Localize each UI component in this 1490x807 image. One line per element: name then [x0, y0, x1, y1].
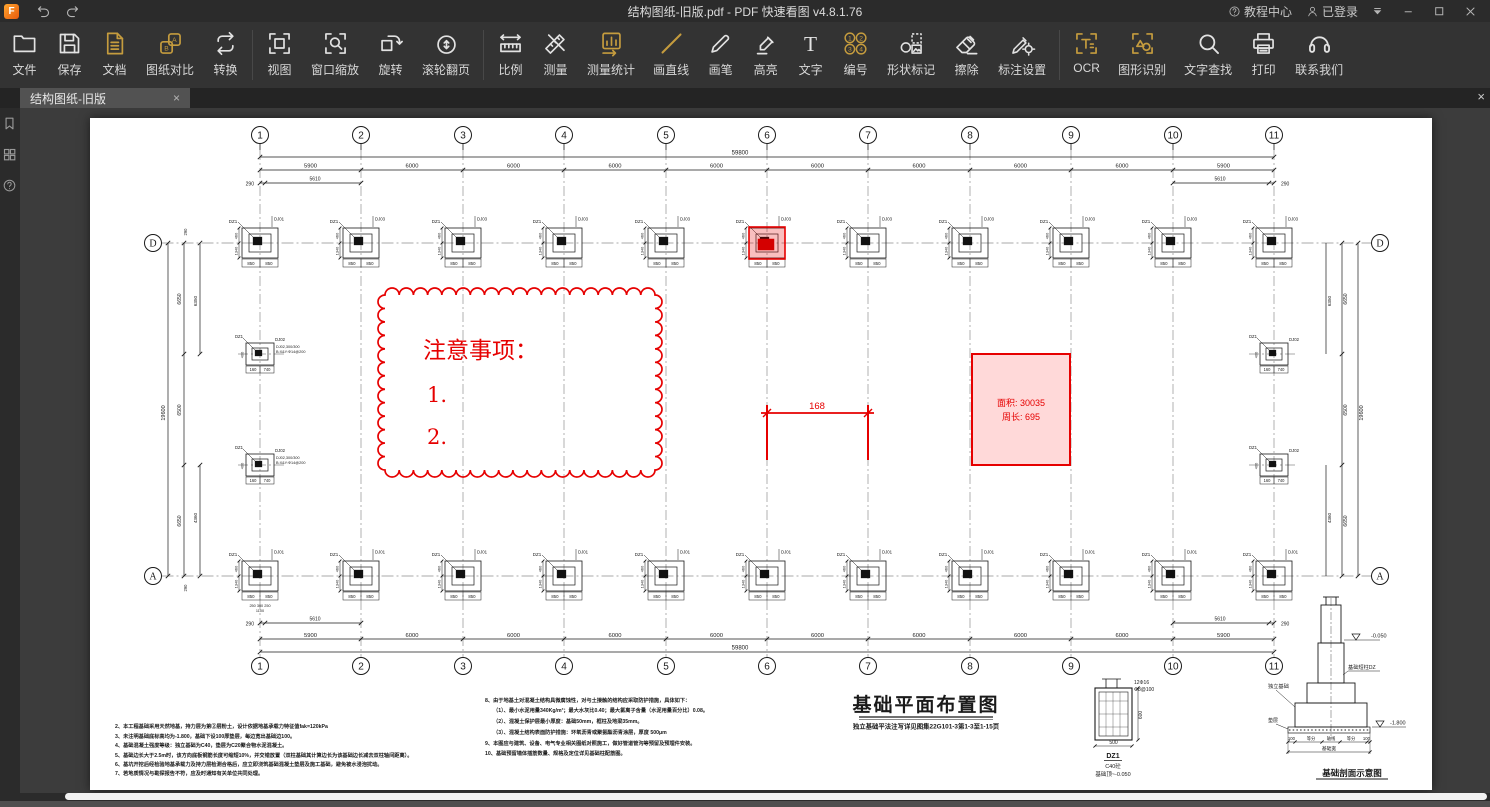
- svg-text:460: 460: [437, 565, 442, 572]
- svg-text:740: 740: [264, 367, 272, 372]
- svg-text:DJ01: DJ01: [781, 550, 792, 555]
- svg-text:DZ1: DZ1: [1040, 219, 1049, 224]
- svg-text:DZ1: DZ1: [330, 552, 339, 557]
- svg-text:850: 850: [975, 594, 983, 599]
- svg-text:850: 850: [1058, 594, 1066, 599]
- footings: DZ1DJ014601340850850DZ1DJ034601340850850…: [229, 216, 1300, 613]
- svg-text:460: 460: [944, 232, 949, 239]
- svg-text:460: 460: [234, 232, 239, 239]
- svg-text:A: A: [149, 572, 157, 583]
- toolbar-separator: [1059, 30, 1060, 80]
- svg-text:3、未注明基础底标高均为-1.800，基础下设100厚垫层，: 3、未注明基础底标高均为-1.800，基础下设100厚垫层，每边宽出基础边100…: [115, 732, 295, 740]
- svg-text:DJ03: DJ03: [578, 217, 589, 222]
- svg-text:DZ1: DZ1: [1106, 753, 1119, 760]
- svg-text:5900: 5900: [304, 633, 317, 639]
- svg-text:100: 100: [1363, 736, 1371, 741]
- toolbar-pen-button[interactable]: 画笔: [698, 29, 743, 79]
- horizontal-scrollbar-thumb[interactable]: [65, 793, 1487, 800]
- svg-text:850: 850: [1058, 261, 1066, 266]
- svg-text:1340: 1340: [1147, 579, 1152, 588]
- svg-text:850: 850: [1261, 261, 1269, 266]
- svg-text:850: 850: [754, 594, 762, 599]
- svg-text:850: 850: [569, 261, 577, 266]
- svg-text:160: 160: [1264, 478, 1272, 483]
- toolbar-label: 图形识别: [1118, 61, 1166, 78]
- toolbar-lineicon-button[interactable]: 画直线: [644, 29, 698, 79]
- svg-text:DZ1: DZ1: [330, 219, 339, 224]
- toolbar-label: 编号: [844, 61, 868, 78]
- toolbar-label: 文字: [799, 61, 823, 78]
- svg-text:290: 290: [183, 228, 188, 236]
- svg-text:6000: 6000: [1014, 633, 1027, 639]
- svg-text:160: 160: [1264, 367, 1272, 372]
- svg-text:160: 160: [250, 367, 258, 372]
- svg-text:1340: 1340: [538, 246, 543, 255]
- toolbar-label: 标注设置: [998, 61, 1046, 78]
- svg-text:DZ1: DZ1: [736, 552, 745, 557]
- svg-text:DJ02: DJ02: [275, 337, 286, 342]
- svg-text:460: 460: [234, 565, 239, 572]
- svg-text:850: 850: [855, 594, 863, 599]
- toolbar-numbers-button[interactable]: 编号: [833, 29, 878, 79]
- svg-text:400: 400: [1254, 462, 1259, 469]
- grid: 11223344556677889910101111DDAA: [145, 127, 1389, 675]
- svg-text:DJ02: DJ02: [1289, 337, 1300, 342]
- svg-text:6000: 6000: [406, 633, 419, 639]
- svg-text:（3）、混凝土结构表面防护措施：环氧沥青或聚氨酯沥青涂层，厚: （3）、混凝土结构表面防护措施：环氧沥青或聚氨酯沥青涂层，厚度 500μm: [493, 728, 667, 736]
- svg-text:460: 460: [335, 232, 340, 239]
- svg-text:独立基础: 独立基础: [1268, 682, 1289, 690]
- svg-text:850: 850: [468, 594, 476, 599]
- svg-text:DZ1: DZ1: [736, 219, 745, 224]
- svg-text:DJ03: DJ03: [680, 217, 691, 222]
- svg-text:DZ1: DZ1: [229, 219, 238, 224]
- svg-text:7: 7: [865, 131, 871, 142]
- contact-icon: [1306, 30, 1333, 57]
- close-button[interactable]: [1464, 5, 1477, 18]
- svg-text:DJ01: DJ01: [477, 550, 488, 555]
- user-icon[interactable]: [1306, 5, 1319, 18]
- toolbar-label: 打印: [1252, 61, 1276, 78]
- titlebar: F 结构图纸-旧版.pdf - PDF 快速看图 v4.8.1.76 教程中心 …: [0, 0, 1490, 22]
- svg-text:4: 4: [561, 662, 567, 673]
- annotation-cloud-note[interactable]: 注意事项：1.2.: [378, 288, 662, 477]
- svg-text:5900: 5900: [1217, 164, 1230, 170]
- redo-icon[interactable]: [65, 4, 80, 19]
- ocr-icon: [1073, 30, 1100, 57]
- svg-text:DJ01: DJ01: [578, 550, 589, 555]
- svg-text:850: 850: [873, 261, 881, 266]
- svg-text:4: 4: [561, 131, 567, 142]
- svg-text:面积: 30035: 面积: 30035: [997, 397, 1045, 408]
- svg-text:独立基础平法注写详见图集22G101-3第1-3至1-15页: 独立基础平法注写详见图集22G101-3第1-3至1-15页: [852, 722, 1000, 731]
- svg-text:5610: 5610: [1214, 177, 1225, 183]
- svg-text:6000: 6000: [609, 164, 622, 170]
- svg-text:850: 850: [653, 261, 661, 266]
- svg-text:6、基坑开挖后经检验地基承载力及持力层检测合格后，应立即浇筑: 6、基坑开挖后经检验地基承载力及持力层检测合格后，应立即浇筑基础混凝土垫层及施工…: [115, 760, 382, 768]
- toolbar-folder-button[interactable]: 文件: [2, 29, 47, 79]
- svg-text:100: 100: [1288, 736, 1296, 741]
- tab-close-icon[interactable]: ×: [173, 91, 180, 105]
- toolbar-winzoom-button[interactable]: 窗口缩放: [302, 29, 368, 79]
- svg-text:DZ1: DZ1: [229, 552, 238, 557]
- svg-text:5: 5: [663, 662, 669, 673]
- svg-text:850: 850: [1279, 261, 1287, 266]
- svg-text:DJ03: DJ03: [882, 217, 893, 222]
- svg-text:9: 9: [1068, 131, 1074, 142]
- app-logo-icon: F: [4, 4, 19, 19]
- toolbar-save-button[interactable]: 保存: [47, 29, 92, 79]
- svg-text:850: 850: [468, 261, 476, 266]
- svg-text:850: 850: [569, 594, 577, 599]
- svg-text:10: 10: [1167, 131, 1179, 142]
- app-window: F 结构图纸-旧版.pdf - PDF 快速看图 v4.8.1.76 教程中心 …: [0, 0, 1490, 807]
- svg-text:DZ1: DZ1: [432, 219, 441, 224]
- rotate-icon: [377, 30, 404, 57]
- annotation-area-box[interactable]: 面积: 30035周长: 695: [972, 354, 1070, 465]
- save-icon: [56, 30, 83, 57]
- svg-text:850: 850: [1076, 261, 1084, 266]
- tab-bar: 结构图纸-旧版 × ×: [0, 88, 1490, 108]
- document-canvas: 11223344556677889910101111DDAA5980059006…: [20, 108, 1490, 793]
- dz1-detail: 12Φ16Φ8@100600500DZ1C40砼基础顶~-0.050: [1093, 679, 1154, 778]
- winzoom-icon: [322, 30, 349, 57]
- toolbar-stats-button[interactable]: 测量统计: [578, 29, 644, 79]
- toolbar-convert-button[interactable]: 转换: [203, 29, 248, 79]
- svg-text:（2）、混凝土保护层最小厚度：基础50mm，框柱及地梁35m: （2）、混凝土保护层最小厚度：基础50mm，框柱及地梁35mm。: [493, 717, 643, 725]
- svg-text:DJ02,300/300: DJ02,300/300: [276, 345, 300, 349]
- svg-text:1340: 1340: [1248, 579, 1253, 588]
- svg-text:DZ1: DZ1: [939, 552, 948, 557]
- help-circle-icon[interactable]: [1228, 5, 1241, 18]
- svg-text:5: 5: [663, 131, 669, 142]
- svg-text:1340: 1340: [234, 579, 239, 588]
- svg-text:DJ02: DJ02: [1289, 448, 1300, 453]
- folder-icon: [11, 30, 38, 57]
- svg-text:850: 850: [772, 261, 780, 266]
- svg-text:DJ03: DJ03: [984, 217, 995, 222]
- toolbar-label: 窗口缩放: [311, 61, 359, 78]
- collapse-ribbon-icon[interactable]: [1371, 5, 1384, 18]
- svg-text:DJ02,300/300: DJ02,300/300: [276, 456, 300, 460]
- svg-text:400: 400: [240, 351, 245, 358]
- svg-text:D: D: [1376, 239, 1383, 250]
- toolbar-textt-button[interactable]: 文字: [788, 29, 833, 79]
- toolbar-scale-button[interactable]: 比例: [488, 29, 533, 79]
- toolbar-compare-button[interactable]: 图纸对比: [137, 29, 203, 79]
- svg-text:740: 740: [1278, 367, 1286, 372]
- svg-text:DZ1: DZ1: [635, 219, 644, 224]
- svg-text:19600: 19600: [1359, 405, 1365, 420]
- svg-text:850: 850: [348, 594, 356, 599]
- svg-text:DZ1: DZ1: [1249, 445, 1258, 450]
- svg-text:-1.800: -1.800: [1390, 721, 1406, 727]
- svg-text:3: 3: [460, 131, 466, 142]
- highlight-icon: [752, 30, 779, 57]
- svg-text:7: 7: [865, 662, 871, 673]
- svg-text:基础顶~-0.050: 基础顶~-0.050: [1095, 770, 1130, 778]
- horizontal-scrollbar: [0, 793, 1490, 801]
- svg-text:4360: 4360: [193, 512, 198, 523]
- toolbar-search-button[interactable]: 文字查找: [1175, 29, 1241, 79]
- svg-text:850: 850: [265, 261, 273, 266]
- svg-text:740: 740: [1278, 478, 1286, 483]
- toolbar-label: 滚轮翻页: [422, 61, 470, 78]
- svg-text:460: 460: [842, 232, 847, 239]
- svg-text:1.: 1.: [427, 383, 447, 407]
- svg-text:460: 460: [944, 565, 949, 572]
- svg-text:DJ03: DJ03: [1288, 217, 1299, 222]
- svg-text:6000: 6000: [609, 633, 622, 639]
- toolbar-label: 形状标记: [887, 61, 935, 78]
- svg-text:1340: 1340: [1248, 246, 1253, 255]
- svg-text:460: 460: [1045, 565, 1050, 572]
- svg-text:Φ8@100: Φ8@100: [1134, 687, 1154, 693]
- title-block: 基础平面布置图独立基础平法注写详见图集22G101-3第1-3至1-15页: [851, 693, 999, 731]
- toolbar-label: 比例: [499, 61, 523, 78]
- svg-text:850: 850: [772, 594, 780, 599]
- drawing-canvas: 11223344556677889910101111DDAA5980059006…: [90, 118, 1432, 790]
- toolbar-contact-button[interactable]: 联系我们: [1286, 29, 1352, 79]
- bookmark-icon[interactable]: [2, 116, 17, 131]
- svg-text:460: 460: [640, 232, 645, 239]
- search-icon: [1195, 30, 1222, 57]
- svg-text:160: 160: [250, 478, 258, 483]
- svg-text:6350: 6350: [1327, 295, 1332, 306]
- svg-text:6500: 6500: [1343, 404, 1349, 415]
- svg-text:DJ01: DJ01: [375, 550, 386, 555]
- svg-text:6500: 6500: [177, 404, 183, 415]
- svg-text:1340: 1340: [234, 246, 239, 255]
- svg-text:850: 850: [855, 261, 863, 266]
- toolbar-label: 图纸对比: [146, 61, 194, 78]
- svg-text:5900: 5900: [1217, 633, 1230, 639]
- svg-text:1340: 1340: [842, 246, 847, 255]
- svg-text:1340: 1340: [335, 579, 340, 588]
- toolbar-label: 画笔: [709, 61, 733, 78]
- svg-text:6000: 6000: [913, 633, 926, 639]
- minimize-button[interactable]: [1402, 5, 1415, 18]
- svg-text:DZ1: DZ1: [533, 219, 542, 224]
- general-notes: 2、本工程基础采用天然地基，持力层为第②层粉土，设计依据地基承载力特征值fak=…: [115, 696, 708, 777]
- shaperec-icon: [1129, 30, 1156, 57]
- pdf-page: 11223344556677889910101111DDAA5980059006…: [90, 118, 1432, 790]
- toolbar-label: 高亮: [754, 61, 778, 78]
- shapes-icon: [898, 30, 925, 57]
- svg-text:DJ03: DJ03: [1085, 217, 1096, 222]
- svg-text:850: 850: [957, 261, 965, 266]
- svg-text:850: 850: [247, 261, 255, 266]
- svg-text:4、基础混凝土强度等级：独立基础为C40，垫层为C20聚合物: 4、基础混凝土强度等级：独立基础为C40，垫层为C20聚合物水泥混凝土。: [115, 741, 287, 749]
- svg-text:1340: 1340: [437, 246, 442, 255]
- svg-text:850: 850: [873, 594, 881, 599]
- svg-text:DJ03: DJ03: [375, 217, 386, 222]
- help-icon[interactable]: [2, 178, 17, 193]
- svg-text:DZ1: DZ1: [837, 219, 846, 224]
- svg-text:DJ01: DJ01: [274, 550, 285, 555]
- svg-text:3: 3: [460, 662, 466, 673]
- svg-text:1340: 1340: [437, 579, 442, 588]
- svg-text:周长: 695: 周长: 695: [1002, 411, 1040, 422]
- svg-text:DJ03: DJ03: [1187, 217, 1198, 222]
- toolbar-print-button[interactable]: 打印: [1241, 29, 1286, 79]
- svg-text:10、基础预留墙体插筋数量、规格及定位详见基础柱配筋图。: 10、基础预留墙体插筋数量、规格及定位详见基础柱配筋图。: [485, 749, 626, 757]
- toolbar-highlight-button[interactable]: 高亮: [743, 29, 788, 79]
- svg-text:DZ1: DZ1: [1142, 552, 1151, 557]
- toolbar-label: 联系我们: [1295, 61, 1343, 78]
- toolbar-separator: [483, 30, 484, 80]
- svg-text:DJ03: DJ03: [781, 217, 792, 222]
- doc-icon: [101, 30, 128, 57]
- svg-text:轴线: 轴线: [1327, 735, 1336, 742]
- svg-text:C40砼: C40砼: [1105, 762, 1121, 770]
- svg-text:850: 850: [957, 594, 965, 599]
- svg-text:168: 168: [809, 401, 825, 412]
- toolbar-doc-button[interactable]: 文档: [92, 29, 137, 79]
- toolbar-annoset-button[interactable]: 标注设置: [989, 29, 1055, 79]
- svg-text:6000: 6000: [811, 164, 824, 170]
- toolbar-shaperec-button[interactable]: 图形识别: [1109, 29, 1175, 79]
- svg-text:5、基础边长大于2.5m时，该方向底板钢筋长度可缩短10%，: 5、基础边长大于2.5m时，该方向底板钢筋长度可缩短10%，并交错放置（双柱基础…: [115, 751, 412, 759]
- svg-text:基础剖面示意图: 基础剖面示意图: [1321, 768, 1382, 778]
- svg-text:基础短柱DZ: 基础短柱DZ: [1348, 663, 1376, 671]
- svg-text:59800: 59800: [732, 646, 749, 652]
- svg-text:DZ1: DZ1: [432, 552, 441, 557]
- svg-text:D: D: [149, 239, 156, 250]
- toolbar-label: 文档: [102, 61, 126, 78]
- toolbar-label: 旋转: [379, 61, 403, 78]
- svg-text:6000: 6000: [811, 633, 824, 639]
- svg-text:460: 460: [437, 232, 442, 239]
- toolbar-measure-button[interactable]: 测量: [533, 29, 578, 79]
- toolbar-separator: [252, 30, 253, 80]
- svg-text:850: 850: [366, 261, 374, 266]
- svg-text:1340: 1340: [944, 246, 949, 255]
- svg-text:850: 850: [975, 261, 983, 266]
- svg-text:6000: 6000: [710, 633, 723, 639]
- svg-text:850: 850: [551, 594, 559, 599]
- svg-text:290: 290: [1281, 182, 1290, 188]
- svg-text:850: 850: [653, 594, 661, 599]
- svg-text:4360: 4360: [1327, 512, 1332, 523]
- svg-text:1340: 1340: [944, 579, 949, 588]
- svg-text:850: 850: [348, 261, 356, 266]
- svg-text:850: 850: [366, 594, 374, 599]
- convert-icon: [212, 30, 239, 57]
- svg-text:460: 460: [741, 232, 746, 239]
- toolbar-scroll-button[interactable]: 滚轮翻页: [413, 29, 479, 79]
- pen-icon: [707, 30, 734, 57]
- svg-text:6000: 6000: [913, 164, 926, 170]
- toolbar-ocr-button[interactable]: OCR: [1064, 29, 1109, 76]
- svg-text:B:X&Y:Φ14@200: B:X&Y:Φ14@200: [276, 461, 305, 465]
- svg-text:DZ1: DZ1: [1142, 219, 1151, 224]
- svg-text:290: 290: [183, 584, 188, 592]
- toolbar-label: 视图: [268, 61, 292, 78]
- svg-text:注意事项：: 注意事项：: [423, 338, 538, 364]
- svg-text:等分: 等分: [1307, 735, 1316, 742]
- measure-icon: [542, 30, 569, 57]
- svg-text:DJ01: DJ01: [680, 550, 691, 555]
- dimensions-right: 1960066506500665063504360: [1326, 241, 1365, 578]
- undo-icon[interactable]: [36, 4, 51, 19]
- tabbar-close-icon[interactable]: ×: [1477, 89, 1485, 104]
- lineicon-icon: [658, 30, 685, 57]
- toolbar-shapes-button[interactable]: 形状标记: [878, 29, 944, 79]
- svg-text:850: 850: [671, 261, 679, 266]
- view-icon: [266, 30, 293, 57]
- svg-text:1340: 1340: [335, 246, 340, 255]
- login-status[interactable]: 已登录: [1322, 3, 1358, 20]
- svg-text:1340: 1340: [1045, 579, 1050, 588]
- svg-text:6650: 6650: [1343, 515, 1349, 526]
- textt-icon: [797, 30, 824, 57]
- toolbar-label: 转换: [214, 61, 238, 78]
- svg-text:600: 600: [1138, 711, 1144, 720]
- svg-text:DZ1: DZ1: [1243, 552, 1252, 557]
- svg-text:2、本工程基础采用天然地基，持力层为第②层粉土，设计依据地基: 2、本工程基础采用天然地基，持力层为第②层粉土，设计依据地基承载力特征值fak=…: [115, 722, 328, 730]
- svg-text:（1）、最小水泥用量340Kg/m³；最大水灰比0.40；最: （1）、最小水泥用量340Kg/m³；最大水灰比0.40；最大氯离子含量（水泥用…: [493, 706, 708, 714]
- svg-text:6000: 6000: [406, 164, 419, 170]
- svg-text:7、若地质情况与勘探报告不符，应及时通知有关单位共同处理。: 7、若地质情况与勘探报告不符，应及时通知有关单位共同处理。: [115, 769, 263, 777]
- svg-text:DZ1: DZ1: [939, 219, 948, 224]
- tab-structural-drawing[interactable]: 结构图纸-旧版 ×: [20, 88, 190, 108]
- annotation-footing-highlight[interactable]: [749, 227, 785, 259]
- svg-text:5610: 5610: [1214, 617, 1225, 623]
- svg-text:1: 1: [257, 662, 263, 673]
- svg-text:460: 460: [640, 565, 645, 572]
- svg-text:1340: 1340: [741, 246, 746, 255]
- tutorial-center-link[interactable]: 教程中心: [1244, 3, 1292, 20]
- svg-text:1: 1: [257, 131, 263, 142]
- svg-text:B:X&Y:Φ14@200: B:X&Y:Φ14@200: [276, 350, 305, 354]
- scale-icon: [497, 30, 524, 57]
- svg-text:6350: 6350: [193, 295, 198, 306]
- toolbar-label: 文字查找: [1184, 61, 1232, 78]
- svg-text:DZ1: DZ1: [1243, 219, 1252, 224]
- svg-text:400: 400: [240, 462, 245, 469]
- toolbar-view-button[interactable]: 视图: [257, 29, 302, 79]
- svg-text:400: 400: [1254, 351, 1259, 358]
- svg-text:1340: 1340: [640, 579, 645, 588]
- svg-text:2: 2: [358, 131, 364, 142]
- svg-text:5900: 5900: [304, 164, 317, 170]
- svg-text:850: 850: [1279, 594, 1287, 599]
- stats-icon: [598, 30, 625, 57]
- maximize-button[interactable]: [1433, 5, 1446, 18]
- svg-text:460: 460: [1045, 232, 1050, 239]
- svg-text:-0.050: -0.050: [1371, 634, 1387, 640]
- svg-text:460: 460: [1147, 232, 1152, 239]
- svg-text:460: 460: [842, 565, 847, 572]
- toolbar-label: OCR: [1073, 61, 1100, 75]
- svg-text:1340: 1340: [1147, 246, 1152, 255]
- svg-text:DJ01: DJ01: [1085, 550, 1096, 555]
- svg-text:59800: 59800: [732, 151, 749, 157]
- annotation-measurement[interactable]: 168: [761, 401, 874, 460]
- svg-text:6: 6: [764, 131, 770, 142]
- svg-text:850: 850: [1160, 261, 1168, 266]
- svg-text:12Φ16: 12Φ16: [1134, 680, 1149, 686]
- svg-text:460: 460: [1248, 565, 1253, 572]
- svg-text:850: 850: [551, 261, 559, 266]
- print-icon: [1250, 30, 1277, 57]
- toolbar-eraser-button[interactable]: 擦除: [944, 29, 989, 79]
- thumbnails-icon[interactable]: [2, 147, 17, 162]
- svg-text:10: 10: [1167, 662, 1179, 673]
- toolbar-rotate-button[interactable]: 旋转: [368, 29, 413, 79]
- svg-text:DJ01: DJ01: [984, 550, 995, 555]
